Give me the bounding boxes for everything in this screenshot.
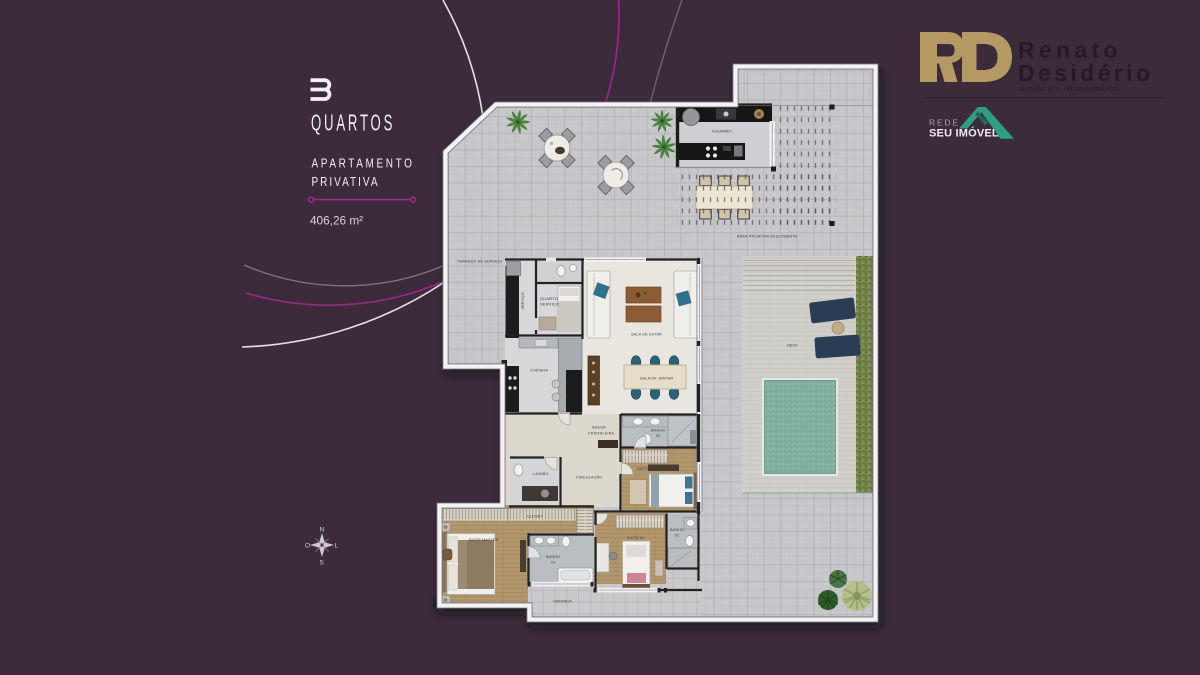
svg-text:L: L [335, 543, 339, 550]
svg-text:BANHO: BANHO [651, 429, 665, 433]
svg-text:N: N [320, 527, 325, 534]
svg-text:SALA DE JANTAR: SALA DE JANTAR [640, 377, 673, 381]
svg-text:SERVIÇO: SERVIÇO [521, 292, 525, 310]
svg-text:VARANDA: VARANDA [553, 600, 572, 604]
svg-text:ÁREA PRIVATIVA DESCOBERTA: ÁREA PRIVATIVA DESCOBERTA [737, 235, 798, 239]
svg-text:TERRAÇO DE SERVIÇO: TERRAÇO DE SERVIÇO [457, 260, 502, 264]
svg-text:PRIVATIVA: PRIVATIVA [312, 175, 380, 190]
svg-text:COZINHA: COZINHA [530, 369, 548, 373]
svg-text:CRISTALEIRA: CRISTALEIRA [588, 432, 614, 436]
svg-text:DECK: DECK [787, 344, 798, 348]
svg-text:406,26 m²: 406,26 m² [310, 214, 363, 228]
svg-text:CIRCULAÇÃO: CIRCULAÇÃO [576, 475, 602, 480]
svg-text:BANHO: BANHO [546, 555, 560, 559]
svg-text:BANHO: BANHO [670, 528, 684, 532]
svg-text:02: 02 [675, 534, 680, 538]
svg-text:SALA DE ESTAR: SALA DE ESTAR [631, 333, 662, 337]
svg-text:ADEGA: ADEGA [592, 426, 606, 430]
svg-text:CLOSET: CLOSET [527, 515, 544, 519]
svg-text:QUARTO: QUARTO [540, 296, 558, 301]
svg-text:SUÍTE MASTER: SUÍTE MASTER [469, 538, 499, 542]
svg-text:SEU IMÓVEL: SEU IMÓVEL [929, 127, 999, 140]
svg-text:SUÍTE 02: SUÍTE 02 [637, 467, 655, 471]
svg-text:Desidério: Desidério [1018, 60, 1153, 86]
svg-text:03: 03 [656, 434, 661, 438]
svg-text:01: 01 [551, 561, 556, 565]
svg-text:REDE: REDE [929, 118, 960, 128]
svg-text:QUARTOS: QUARTOS [311, 111, 395, 137]
svg-text:LAVABO: LAVABO [533, 472, 548, 476]
svg-text:SERVIÇO: SERVIÇO [540, 302, 559, 307]
svg-text:S: S [320, 560, 325, 567]
svg-text:APARTAMENTO: APARTAMENTO [312, 156, 415, 171]
svg-text:NEGÓCIOS IMOBILIÁRIOS: NEGÓCIOS IMOBILIÁRIOS [1019, 84, 1120, 93]
svg-text:SUÍTE 01: SUÍTE 01 [627, 536, 645, 540]
svg-text:GOURMET: GOURMET [712, 130, 733, 134]
svg-text:O: O [305, 543, 310, 550]
